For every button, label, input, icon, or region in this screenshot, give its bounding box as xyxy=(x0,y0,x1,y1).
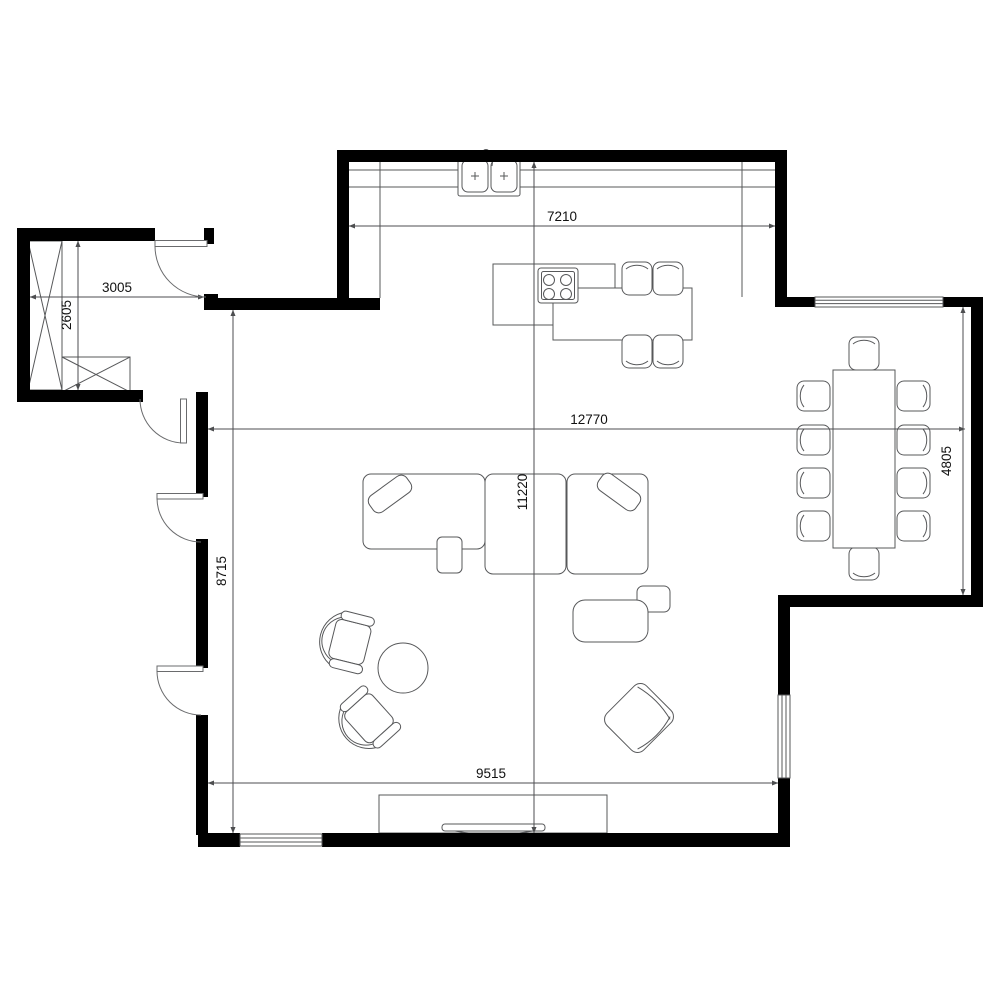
dining-chair-icon xyxy=(897,511,930,541)
window-icon xyxy=(815,297,943,307)
coffee-table-icon xyxy=(378,643,428,693)
dim-label-kitchen-width: 7210 xyxy=(547,209,577,224)
wardrobe-icon xyxy=(28,241,62,390)
side-table xyxy=(437,537,462,573)
dining-chair-icon xyxy=(797,511,830,541)
lounger-left xyxy=(363,472,485,549)
dining-chair-icon xyxy=(849,547,879,580)
dining-chair-icon xyxy=(797,381,830,411)
stool-icon xyxy=(653,335,683,368)
door-icon xyxy=(157,494,203,543)
window-icon xyxy=(778,695,790,778)
floor-plan-page: 7210 3005 2605 12770 11220 4805 8715 951… xyxy=(0,0,1000,1000)
armchair-icon xyxy=(314,607,376,675)
dining-chair-icon xyxy=(897,381,930,411)
bench-icon xyxy=(62,357,130,392)
dim-label-hall-depth: 2605 xyxy=(59,300,74,330)
dining-chair-icon xyxy=(897,468,930,498)
door-icon xyxy=(140,399,187,443)
dim-label-dining-depth: 4805 xyxy=(939,446,954,476)
dim-label-living-width: 9515 xyxy=(476,766,506,781)
floor-plan-canvas: 7210 3005 2605 12770 11220 4805 8715 951… xyxy=(0,0,1000,1000)
stool-icon xyxy=(622,335,652,368)
lounger-right xyxy=(567,470,648,574)
accent-chair-icon xyxy=(601,680,677,756)
dining-chair-icon xyxy=(849,337,879,370)
armchair-icon xyxy=(327,684,402,760)
stool-icon xyxy=(622,262,652,295)
armchair-cluster xyxy=(314,607,428,761)
dining-set xyxy=(797,337,930,580)
door-icon xyxy=(157,666,203,715)
side-table-icon xyxy=(437,537,462,573)
ottoman-group xyxy=(573,586,670,642)
dining-chair-icon xyxy=(797,468,830,498)
dim-label-total-depth: 11220 xyxy=(515,474,530,511)
stove-icon xyxy=(538,268,578,303)
dining-table-icon xyxy=(833,370,895,548)
stool-icon xyxy=(653,262,683,295)
door-icon xyxy=(155,241,207,298)
dim-label-total-width: 12770 xyxy=(570,412,608,427)
ottoman-icon xyxy=(573,600,648,642)
window-icon xyxy=(240,834,322,846)
dim-label-living-depth: 8715 xyxy=(214,556,229,586)
dim-label-hall-width: 3005 xyxy=(102,280,132,295)
